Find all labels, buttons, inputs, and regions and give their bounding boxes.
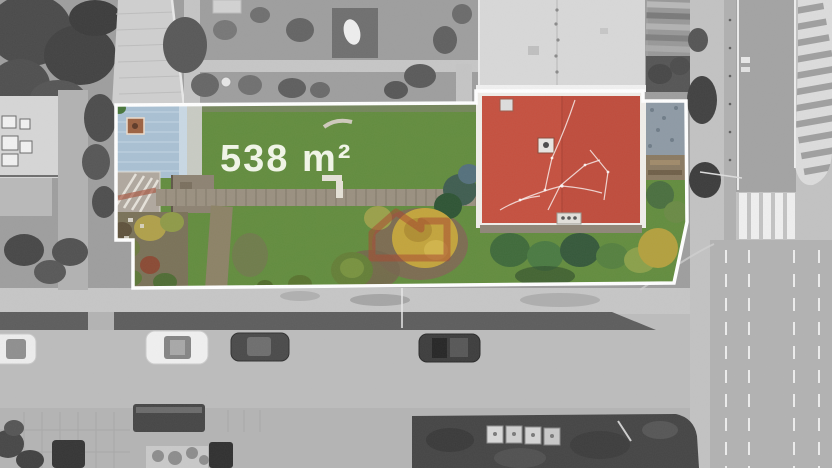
aerial-property-photo: 538 m² <box>0 0 832 468</box>
photo-grain-overlay <box>0 0 832 468</box>
